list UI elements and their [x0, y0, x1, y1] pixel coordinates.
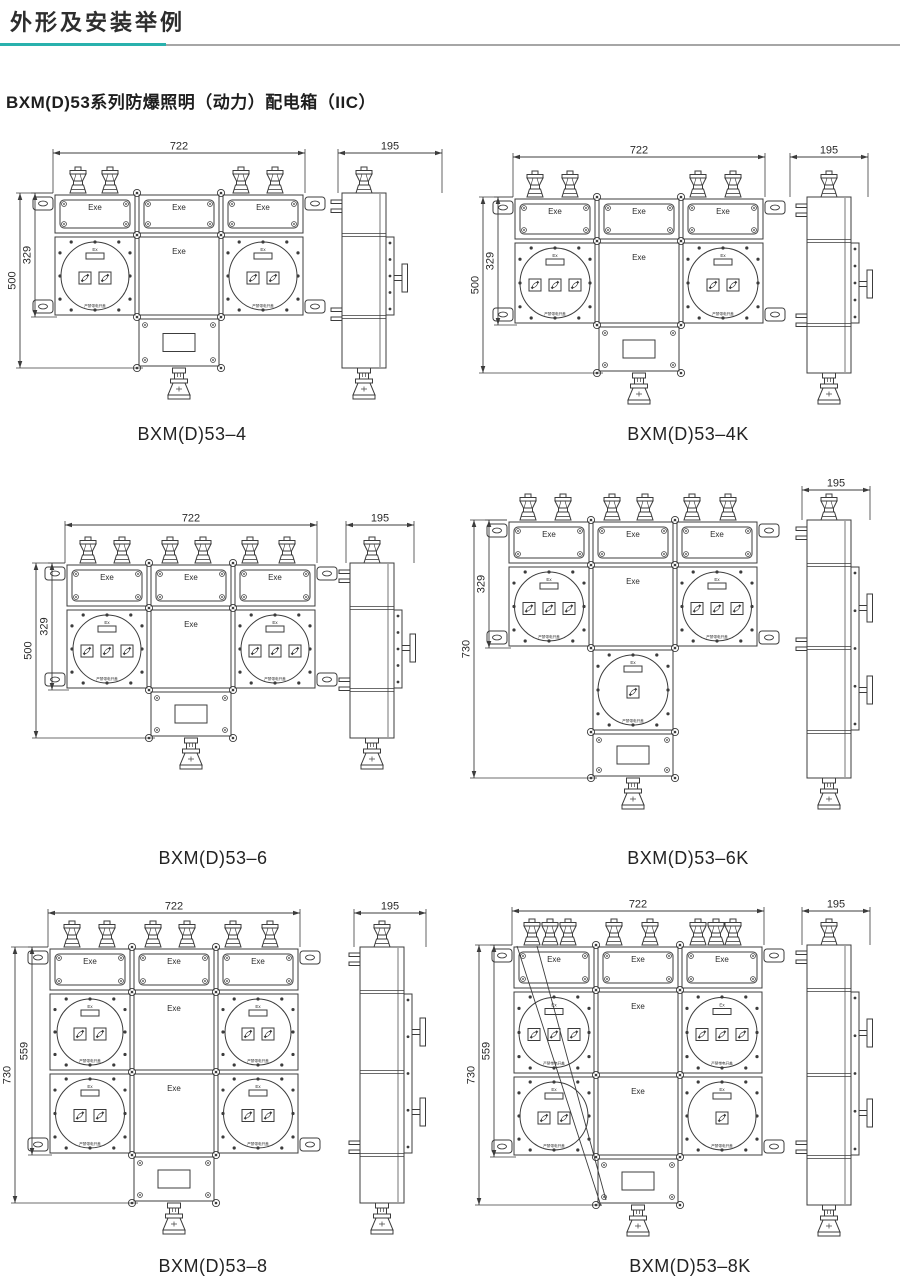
svg-text:Exe: Exe	[626, 530, 640, 539]
svg-text:500: 500	[23, 641, 35, 659]
svg-text:329: 329	[39, 617, 51, 635]
svg-text:722: 722	[182, 513, 200, 525]
svg-text:Exe: Exe	[631, 1002, 645, 1011]
svg-text:Exe: Exe	[172, 247, 186, 256]
figure-bxm-d-53-8k: ExeExeExeEx严禁带电开盖ExeEx严禁带电开盖Ex严禁带电开盖ExeE…	[466, 899, 873, 1237]
svg-text:严禁带电开盖: 严禁带电开盖	[711, 1061, 733, 1066]
svg-text:195: 195	[381, 901, 399, 913]
side-view: 195	[796, 478, 873, 810]
front-view: ExeExeExeEx严禁带电开盖ExeEx严禁带电开盖Ex严禁带电开盖ExeE…	[492, 919, 784, 1236]
svg-text:Exe: Exe	[268, 573, 282, 582]
svg-text:严禁带电开盖: 严禁带电开盖	[247, 1058, 269, 1063]
svg-text:730: 730	[2, 1066, 14, 1084]
dimension-annotations: 722500329	[7, 141, 306, 369]
svg-text:Exe: Exe	[626, 577, 640, 586]
svg-text:Exe: Exe	[167, 1084, 181, 1093]
svg-text:严禁带电开盖: 严禁带电开盖	[96, 676, 118, 681]
svg-text:195: 195	[371, 513, 389, 525]
svg-text:Exe: Exe	[715, 955, 729, 964]
front-view: ExeExeExeEx严禁带电开盖ExeEx严禁带电开盖Ex严禁带电开盖ExeE…	[28, 921, 320, 1234]
figure-label-4: BXM(D)53–4	[137, 424, 246, 445]
svg-text:Exe: Exe	[548, 207, 562, 216]
svg-text:严禁带电开盖: 严禁带电开盖	[247, 1141, 269, 1146]
front-view: ExeExeExeEx严禁带电开盖ExeEx严禁带电开盖	[33, 167, 325, 399]
svg-text:730: 730	[466, 1066, 478, 1084]
svg-text:严禁带电开盖: 严禁带电开盖	[79, 1141, 101, 1146]
figure-bxm-d-53-4k: ExeExeExeEx严禁带电开盖ExeEx严禁带电开盖195722500329	[470, 145, 873, 405]
figure-bxm-d-53-4: ExeExeExeEx严禁带电开盖ExeEx严禁带电开盖195722500329	[7, 141, 443, 400]
svg-text:Exe: Exe	[632, 253, 646, 262]
svg-text:329: 329	[22, 246, 34, 264]
svg-text:Exe: Exe	[251, 957, 265, 966]
svg-text:Ex: Ex	[87, 1004, 93, 1009]
svg-text:严禁带电开盖: 严禁带电开盖	[544, 311, 566, 316]
svg-text:严禁带电开盖: 严禁带电开盖	[84, 303, 106, 308]
side-view: 195	[796, 899, 873, 1237]
svg-text:Ex: Ex	[255, 1084, 261, 1089]
svg-text:Exe: Exe	[167, 957, 181, 966]
svg-text:329: 329	[485, 252, 497, 270]
svg-text:Exe: Exe	[631, 955, 645, 964]
svg-text:Exe: Exe	[547, 955, 561, 964]
svg-text:严禁带电开盖: 严禁带电开盖	[538, 634, 560, 639]
svg-text:严禁带电开盖: 严禁带电开盖	[706, 634, 728, 639]
svg-text:Ex: Ex	[720, 253, 726, 258]
svg-text:Ex: Ex	[87, 1084, 93, 1089]
svg-text:722: 722	[629, 899, 647, 911]
svg-text:Exe: Exe	[184, 573, 198, 582]
dimension-annotations: 730329	[461, 520, 598, 778]
svg-text:严禁带电开盖: 严禁带电开盖	[264, 676, 286, 681]
svg-text:Exe: Exe	[172, 203, 186, 212]
svg-text:Ex: Ex	[719, 1087, 725, 1092]
figure-label-8: BXM(D)53–8	[158, 1256, 267, 1277]
svg-text:559: 559	[481, 1042, 493, 1060]
svg-text:Ex: Ex	[92, 247, 98, 252]
svg-text:500: 500	[7, 271, 19, 289]
svg-text:Exe: Exe	[542, 530, 556, 539]
svg-text:Ex: Ex	[552, 253, 558, 258]
svg-text:195: 195	[827, 478, 845, 490]
svg-text:722: 722	[165, 901, 183, 913]
svg-text:严禁带电开盖: 严禁带电开盖	[711, 1143, 733, 1148]
svg-text:严禁带电开盖: 严禁带电开盖	[712, 311, 734, 316]
svg-text:Exe: Exe	[716, 207, 730, 216]
figure-bxm-d-53-6: ExeExeExeEx严禁带电开盖ExeEx严禁带电开盖195722500329	[23, 513, 416, 770]
svg-text:Ex: Ex	[272, 620, 278, 625]
front-view: ExeExeExeEx严禁带电开盖ExeEx严禁带电开盖Ex严禁带电开盖	[487, 494, 779, 809]
svg-text:195: 195	[381, 141, 399, 153]
svg-text:Exe: Exe	[632, 207, 646, 216]
figure-label-6k: BXM(D)53–6K	[627, 848, 749, 869]
svg-text:Ex: Ex	[551, 1087, 557, 1092]
svg-text:559: 559	[19, 1042, 31, 1060]
svg-text:Ex: Ex	[104, 620, 110, 625]
side-view: 195	[349, 901, 426, 1235]
svg-text:730: 730	[461, 640, 473, 658]
side-view: 195	[331, 141, 442, 400]
svg-text:195: 195	[820, 145, 838, 157]
svg-text:Ex: Ex	[719, 1003, 725, 1008]
svg-text:严禁带电开盖: 严禁带电开盖	[79, 1058, 101, 1063]
svg-text:Exe: Exe	[83, 957, 97, 966]
svg-text:329: 329	[476, 575, 488, 593]
svg-text:500: 500	[470, 276, 482, 294]
svg-text:Exe: Exe	[167, 1004, 181, 1013]
svg-text:Exe: Exe	[184, 620, 198, 629]
front-view: ExeExeExeEx严禁带电开盖ExeEx严禁带电开盖	[493, 171, 785, 404]
svg-text:Exe: Exe	[88, 203, 102, 212]
figure-label-4k: BXM(D)53–4K	[627, 424, 749, 445]
svg-text:722: 722	[170, 141, 188, 153]
figure-label-6: BXM(D)53–6	[158, 848, 267, 869]
svg-text:Ex: Ex	[630, 660, 636, 665]
svg-text:Ex: Ex	[255, 1004, 261, 1009]
front-view: ExeExeExeEx严禁带电开盖ExeEx严禁带电开盖	[45, 537, 337, 769]
svg-text:Ex: Ex	[260, 247, 266, 252]
figure-bxm-d-53-6k: ExeExeExeEx严禁带电开盖ExeEx严禁带电开盖Ex严禁带电开盖1957…	[461, 478, 873, 810]
svg-text:722: 722	[630, 145, 648, 157]
side-view: 195	[339, 513, 416, 770]
svg-text:严禁带电开盖: 严禁带电开盖	[252, 303, 274, 308]
svg-text:严禁带电开盖: 严禁带电开盖	[543, 1143, 565, 1148]
svg-text:Ex: Ex	[714, 577, 720, 582]
side-view: 195	[790, 145, 873, 405]
svg-text:Exe: Exe	[631, 1087, 645, 1096]
technical-drawings-canvas: ExeExeExeEx严禁带电开盖ExeEx严禁带电开盖195722500329…	[0, 0, 900, 1276]
figure-label-8k: BXM(D)53–8K	[629, 1256, 751, 1277]
figure-bxm-d-53-8: ExeExeExeEx严禁带电开盖ExeEx严禁带电开盖Ex严禁带电开盖ExeE…	[2, 901, 427, 1235]
svg-text:Exe: Exe	[100, 573, 114, 582]
svg-text:Ex: Ex	[546, 577, 552, 582]
svg-text:严禁带电开盖: 严禁带电开盖	[622, 718, 644, 723]
svg-text:195: 195	[827, 899, 845, 911]
svg-text:Exe: Exe	[710, 530, 724, 539]
svg-text:Exe: Exe	[256, 203, 270, 212]
